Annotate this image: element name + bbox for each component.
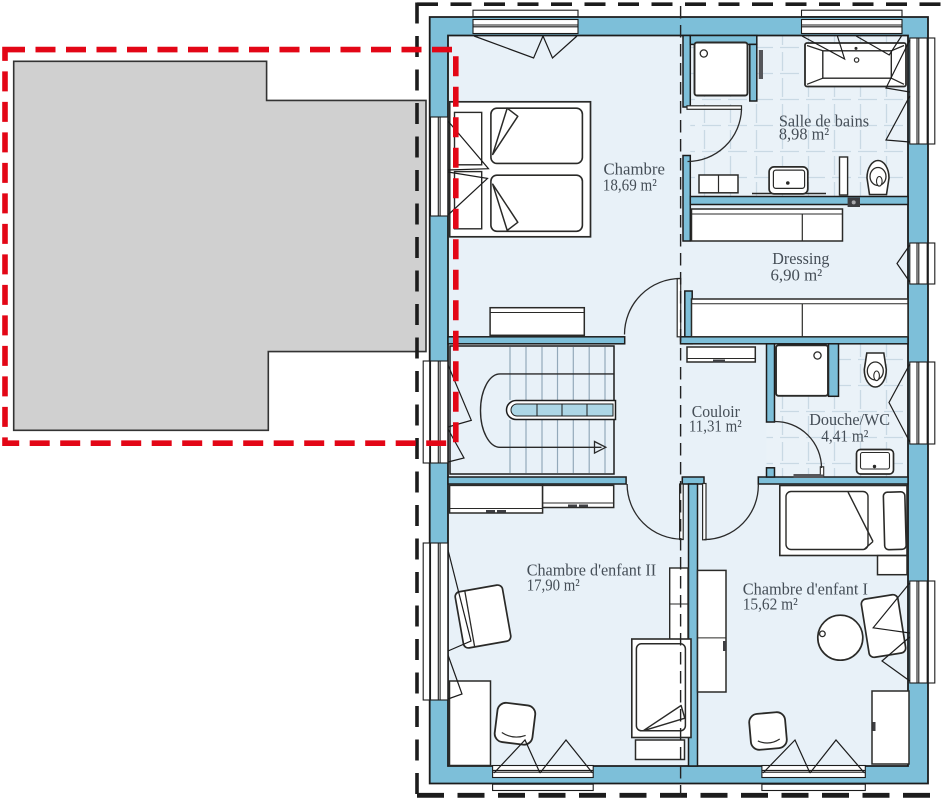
svg-text:6,90 m²: 6,90 m²: [771, 266, 823, 285]
svg-text:8,98 m²: 8,98 m²: [779, 125, 829, 144]
svg-text:4,41 m²: 4,41 m²: [821, 427, 868, 446]
svg-text:17,90 m²: 17,90 m²: [527, 576, 580, 595]
svg-text:18,69 m²: 18,69 m²: [603, 176, 657, 195]
svg-text:11,31 m²: 11,31 m²: [689, 417, 742, 436]
svg-text:15,62 m²: 15,62 m²: [743, 595, 798, 614]
